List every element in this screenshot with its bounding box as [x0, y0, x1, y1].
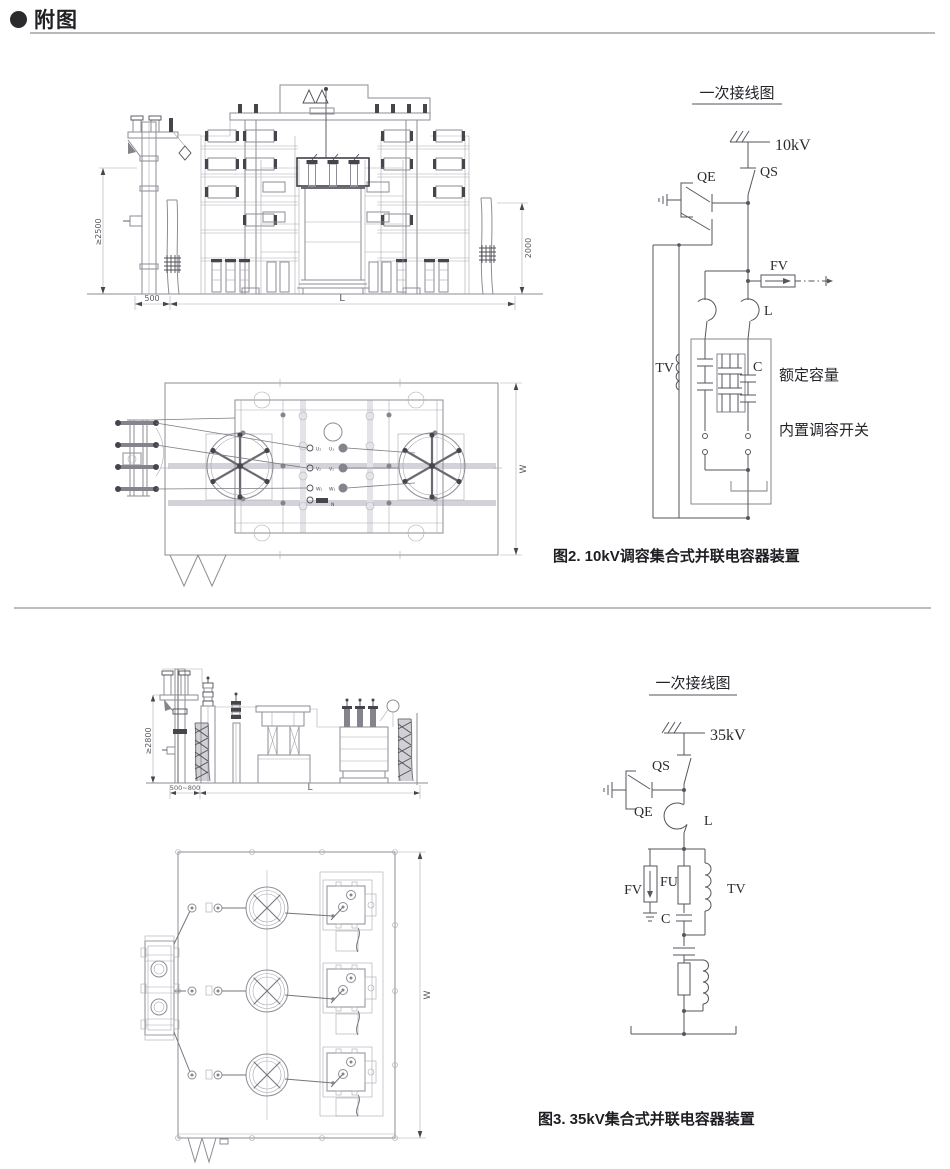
- transformer: [297, 154, 369, 294]
- fence-post-right: [479, 198, 496, 294]
- incoming-line: 35kV: [662, 722, 746, 744]
- transformer: [340, 699, 399, 784]
- dim-2500: ≥2500: [94, 218, 103, 245]
- fu-fuse: FU C: [660, 849, 692, 937]
- tv-label: TV: [727, 882, 746, 897]
- fence-panel-left: [195, 723, 210, 781]
- dim-width-W: W: [423, 990, 433, 999]
- series-reactors: L: [698, 299, 773, 339]
- terminal-w1: W₁: [329, 487, 336, 493]
- fig2-bottom-dimension: 500 L: [135, 293, 515, 310]
- fig3-bottom-dimension: 500~800 L: [170, 783, 420, 799]
- tv-transformer: TV: [684, 849, 746, 935]
- rated-capacity-label: 额定容量: [779, 367, 839, 384]
- dim-length-L: L: [339, 293, 345, 304]
- dim-width-W: W: [519, 464, 529, 473]
- series-reactor: L: [664, 790, 712, 849]
- incoming-line: 10kV: [730, 131, 811, 154]
- terminal-v2: V₂: [316, 467, 321, 473]
- fig2-schematic-drawing: 一次接线图 10kV QS QE: [633, 73, 933, 553]
- surge-arrester: [231, 693, 241, 784]
- terminal-w2: W₂: [316, 487, 323, 493]
- fv-arrester: FV: [746, 259, 833, 287]
- neutral-bar: [631, 1011, 736, 1036]
- utility-pole: [123, 116, 201, 294]
- dim-500: 500: [144, 294, 159, 303]
- fig2-schematic-title: 一次接线图: [699, 85, 774, 102]
- terminal-box: [141, 936, 179, 1040]
- fig2-fence-height-dimension: 2000: [497, 203, 533, 294]
- qs-label: QS: [652, 759, 670, 774]
- fv-arrester: FV: [624, 849, 657, 921]
- fig2-front-view-drawing: 500 L ≥2500 2000: [85, 70, 545, 320]
- terminal-u2: U₂: [316, 447, 321, 453]
- voltage-label: 10kV: [775, 137, 811, 154]
- capacitor-units: [320, 872, 383, 1116]
- voltage-label: 35kV: [710, 727, 746, 744]
- fig2-width-dimension: W: [500, 383, 529, 555]
- damping-branch: [673, 935, 709, 1013]
- fu-label: FU: [660, 875, 678, 890]
- c-label: C: [753, 360, 762, 375]
- builtin-switch-label: 内置调容开关: [779, 422, 869, 439]
- qs-label: QS: [760, 165, 778, 180]
- c-label: C: [661, 912, 670, 927]
- bushing-assembly: [115, 420, 164, 496]
- fv-label: FV: [770, 259, 788, 274]
- capacitor-units-right: [381, 130, 465, 292]
- terminal-strip: U₂ U₁ V₂ V₁ W₂ W₁ N: [299, 412, 374, 510]
- capacitor-units-left: [205, 130, 277, 292]
- l-label: L: [764, 304, 773, 319]
- qe-label: QE: [634, 805, 653, 820]
- cover-flaps: [188, 1138, 228, 1162]
- cover-flaps: [170, 555, 226, 586]
- fig3-caption: 图3. 35kV集合式并联电容器装置: [538, 1108, 755, 1129]
- tv-transformer: TV: [655, 354, 679, 390]
- l-label: L: [704, 814, 713, 829]
- connection-wires: [150, 418, 415, 489]
- qs-disconnector: QS: [652, 733, 691, 790]
- qe-label: QE: [697, 170, 716, 185]
- page-header: 附图: [10, 4, 78, 34]
- bullet-icon: [10, 11, 27, 28]
- fig2-caption: 图2. 10kV调容集合式并联电容器装置: [553, 545, 800, 566]
- fence-panel-right: [398, 713, 417, 785]
- dim-2800: ≥2800: [144, 727, 153, 754]
- reactor-assembly: [256, 706, 310, 783]
- fig3-front-view-drawing: 500~800 L ≥2800: [140, 653, 460, 831]
- qe-earthing-switch: QE: [653, 170, 748, 518]
- fig3-width-dimension: W: [395, 852, 433, 1138]
- header-divider: [30, 32, 935, 34]
- qe-earthing-switch: QE: [604, 771, 684, 820]
- fig2-plan-view-drawing: W: [110, 358, 530, 590]
- dim-2000: 2000: [524, 238, 533, 258]
- section-divider: [14, 607, 931, 609]
- dim-length-L: L: [307, 783, 312, 793]
- fig3-schematic-title: 一次接线图: [655, 675, 730, 692]
- capacitor-bank: C: [691, 339, 771, 518]
- terminal-n: N: [331, 502, 334, 508]
- qs-disconnector: QS: [740, 142, 778, 203]
- fig2-pole-height-dimension: ≥2500: [94, 168, 137, 294]
- fence-post-left: [164, 200, 181, 294]
- dim-500-800: 500~800: [170, 784, 200, 792]
- capacitor-rack-structure: [201, 85, 469, 294]
- terminal-u1: U₁: [329, 447, 334, 453]
- fig3-plan-view-drawing: W: [130, 828, 440, 1169]
- terminal-v1: V₁: [329, 467, 334, 473]
- phase-connections: [174, 903, 335, 1085]
- fig3-schematic-drawing: 一次接线图 35kV QS QE L: [588, 663, 918, 1058]
- tv-label: TV: [655, 361, 674, 376]
- fv-label: FV: [624, 883, 642, 898]
- page-title: 附图: [34, 4, 78, 34]
